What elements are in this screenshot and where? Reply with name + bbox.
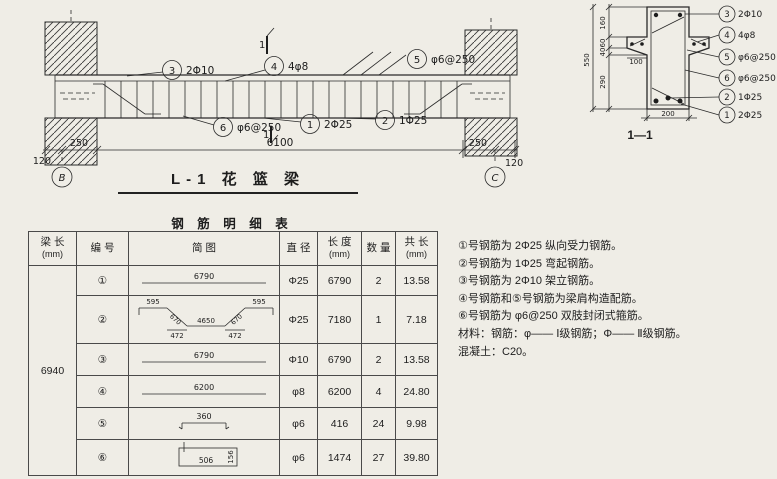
table-row: ④ 6200 φ8 6200 4 24.80	[29, 376, 438, 408]
dim-seg-bottom: 290	[599, 75, 607, 88]
table-row: 6940 ① 6790 Φ25 6790 2 13.58	[29, 266, 438, 296]
cell-sketch: 595 595 4650 670 670 472 472	[129, 296, 280, 344]
cell-qty: 2	[362, 344, 396, 376]
dim-offset-left: 120	[33, 156, 51, 167]
svg-text:6: 6	[220, 123, 226, 134]
cell-length: 7180	[318, 296, 362, 344]
header-beam-length: 梁 长(mm)	[29, 232, 77, 266]
cell-sketch: 6790	[129, 344, 280, 376]
grid-bubble-C: C	[485, 167, 505, 187]
table-row: ② 595 595 4650 670 670 472	[29, 296, 438, 344]
section-label-6-text: φ6@250	[738, 74, 776, 84]
cell-diameter: Φ25	[280, 296, 318, 344]
cell-number: ③	[77, 344, 129, 376]
note-line: 混凝土：C20。	[458, 344, 773, 362]
note-line: ①号钢筋为 2Φ25 纵向受力钢筋。	[458, 238, 773, 256]
cell-sketch: 6790	[129, 266, 280, 296]
cell-total: 24.80	[396, 376, 438, 408]
dim-seg-top: 160	[599, 16, 607, 29]
svg-text:C: C	[492, 173, 499, 184]
note-line: ⑥号钢筋为 φ6@250 双肢封闭式箍筋。	[458, 308, 773, 326]
dim-beam-width: 200	[661, 110, 674, 118]
svg-text:1: 1	[259, 40, 265, 51]
section-labels	[670, 6, 735, 123]
svg-text:6200: 6200	[194, 383, 214, 392]
section-label-3-num: 3	[724, 10, 729, 20]
section-title: 1—1	[575, 128, 705, 142]
section-label-2-text: 1Φ25	[738, 93, 762, 103]
cell-qty: 2	[362, 266, 396, 296]
cell-diameter: φ6	[280, 408, 318, 440]
rebar-schedule-table: 梁 长(mm) 编 号 简 图 直 径 长 度(mm) 数 量 共 长(mm) …	[28, 231, 438, 476]
table-row: ⑤ 360 φ6 416 24 9.98	[29, 408, 438, 440]
section-label-2-num: 2	[724, 93, 729, 103]
svg-text:φ6@250: φ6@250	[237, 122, 281, 134]
label-bar3: 3 2Φ10	[127, 61, 214, 80]
header-number: 编 号	[77, 232, 129, 266]
beam-outline	[55, 75, 510, 118]
svg-text:156: 156	[227, 450, 235, 464]
cell-total: 9.98	[396, 408, 438, 440]
cell-total: 7.18	[396, 296, 438, 344]
svg-text:472: 472	[170, 332, 183, 340]
dim-bearing-left: 250	[70, 138, 88, 149]
svg-text:4650: 4650	[197, 317, 215, 325]
svg-text:5: 5	[414, 55, 420, 66]
section-label-3-text: 2Φ10	[738, 10, 763, 20]
svg-text:3: 3	[169, 66, 175, 77]
table-row: ③ 6790 Φ10 6790 2 13.58	[29, 344, 438, 376]
section-label-4-text: 4φ8	[738, 31, 756, 41]
dim-total-height: 550	[583, 53, 591, 66]
svg-text:4: 4	[271, 62, 277, 73]
section-label-5-text: φ6@250	[738, 53, 776, 63]
cell-number: ⑤	[77, 408, 129, 440]
svg-text:670: 670	[229, 312, 244, 326]
section-drawing: 160 60 40 290 550 100 200 3 2Φ10 4 4φ8 5	[575, 2, 777, 126]
note-line: ④号钢筋和⑤号钢筋为梁肩构造配筋。	[458, 291, 773, 309]
svg-text:B: B	[59, 173, 66, 184]
svg-text:1Φ25: 1Φ25	[399, 115, 427, 127]
table-header-row: 梁 长(mm) 编 号 简 图 直 径 长 度(mm) 数 量 共 长(mm)	[29, 232, 438, 266]
table-title: 钢 筋 明 细 表	[28, 213, 436, 232]
dim-offset-right: 120	[505, 158, 523, 169]
cell-qty: 27	[362, 440, 396, 476]
cell-diameter: Φ25	[280, 266, 318, 296]
svg-text:1: 1	[307, 120, 313, 131]
cell-length: 1474	[318, 440, 362, 476]
note-line: 材料：钢筋：φ—— Ⅰ级钢筋；Φ—— Ⅱ级钢筋。	[458, 326, 773, 344]
drawing-sheet: 1 1 3 2Φ10 4 4φ8 5 φ6@250	[0, 0, 777, 479]
svg-text:4φ8: 4φ8	[288, 61, 308, 73]
dim-span: 6100	[267, 137, 294, 149]
svg-text:6790: 6790	[194, 351, 214, 360]
cell-sketch: 506 156	[129, 440, 280, 476]
svg-text:2Φ25: 2Φ25	[324, 119, 352, 131]
dim-flange-width: 100	[629, 58, 642, 66]
notes-block: ①号钢筋为 2Φ25 纵向受力钢筋。 ②号钢筋为 1Φ25 弯起钢筋。 ③号钢筋…	[458, 238, 773, 361]
svg-text:472: 472	[228, 332, 241, 340]
cell-total: 13.58	[396, 266, 438, 296]
cell-qty: 4	[362, 376, 396, 408]
cell-diameter: φ6	[280, 440, 318, 476]
cell-length: 6790	[318, 344, 362, 376]
svg-text:2: 2	[382, 116, 388, 127]
section-label-5-num: 5	[724, 53, 729, 63]
header-length: 长 度(mm)	[318, 232, 362, 266]
svg-text:670: 670	[168, 312, 183, 326]
label-bar6: 6 φ6@250	[183, 116, 281, 137]
cell-length: 6790	[318, 266, 362, 296]
cell-number: ⑥	[77, 440, 129, 476]
cell-length: 416	[318, 408, 362, 440]
header-qty: 数 量	[362, 232, 396, 266]
right-wall-hatch	[465, 18, 517, 156]
svg-text:360: 360	[196, 412, 211, 421]
cell-sketch: 6200	[129, 376, 280, 408]
grid-bubble-B: B	[52, 167, 72, 187]
cell-sketch: 360	[129, 408, 280, 440]
svg-text:595: 595	[252, 298, 265, 306]
bent-bar-lines	[60, 84, 505, 114]
dim-seg-taper: 40	[599, 48, 607, 57]
cell-qty: 24	[362, 408, 396, 440]
section-label-1-text: 2Φ25	[738, 111, 762, 121]
cell-number: ②	[77, 296, 129, 344]
cell-number: ④	[77, 376, 129, 408]
stirrup-lines	[105, 81, 457, 118]
cell-total: 13.58	[396, 344, 438, 376]
dim-seg-flange: 60	[599, 39, 607, 48]
note-line: ②号钢筋为 1Φ25 弯起钢筋。	[458, 256, 773, 274]
note-line: ③号钢筋为 2Φ10 架立钢筋。	[458, 273, 773, 291]
section-label-4-num: 4	[724, 31, 729, 41]
section-cut-mark-top: 1	[259, 28, 274, 54]
section-label-1-num: 1	[724, 111, 729, 121]
cell-number: ①	[77, 266, 129, 296]
section-label-6-num: 6	[724, 74, 729, 84]
cell-diameter: φ8	[280, 376, 318, 408]
svg-text:2Φ10: 2Φ10	[186, 65, 214, 77]
svg-text:6790: 6790	[194, 272, 214, 281]
cell-length: 6200	[318, 376, 362, 408]
svg-text:φ6@250: φ6@250	[431, 54, 475, 66]
label-bar5: 5 φ6@250	[343, 50, 475, 76]
header-total: 共 长(mm)	[396, 232, 438, 266]
beam-title: L-1 花 篮 梁	[118, 168, 358, 194]
cell-total: 39.80	[396, 440, 438, 476]
dim-bearing-right: 250	[469, 138, 487, 149]
svg-text:506: 506	[199, 456, 214, 465]
cell-beam-length: 6940	[29, 266, 77, 476]
cell-diameter: Φ10	[280, 344, 318, 376]
cell-qty: 1	[362, 296, 396, 344]
header-sketch: 简 图	[129, 232, 280, 266]
header-diameter: 直 径	[280, 232, 318, 266]
table-row: ⑥ 506 156 φ6 1474 27 39.80	[29, 440, 438, 476]
svg-text:595: 595	[146, 298, 159, 306]
label-bar4: 4 4φ8	[225, 57, 308, 82]
